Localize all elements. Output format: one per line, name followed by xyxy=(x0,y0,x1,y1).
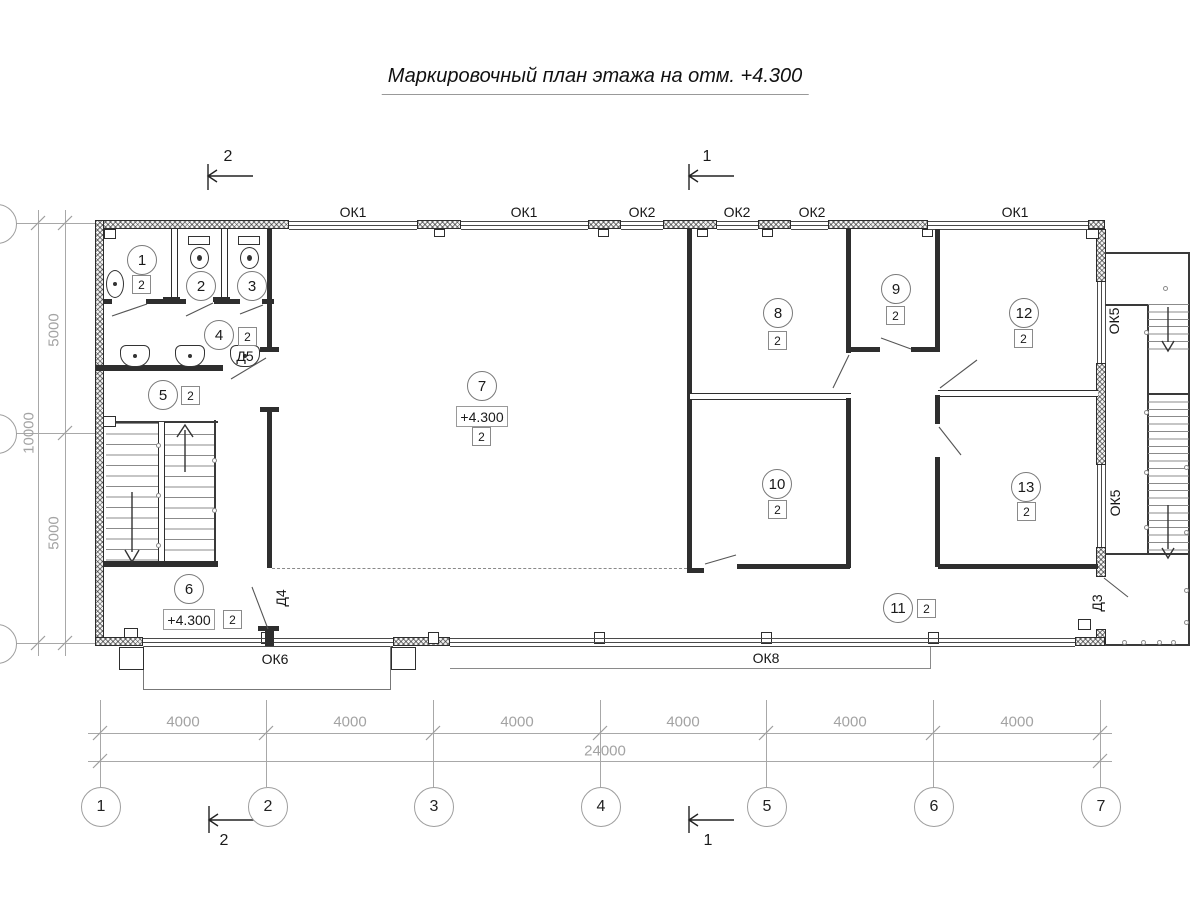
finish-badge: 2 xyxy=(768,331,787,350)
dimension-text: 4000 xyxy=(333,714,366,731)
window-label: ОК6 xyxy=(262,651,289,667)
window-label: ОК1 xyxy=(340,204,367,220)
stair-down-arrow xyxy=(1162,307,1174,351)
door-leaf xyxy=(833,355,849,388)
window-label: ОК1 xyxy=(511,204,538,220)
door-leaf xyxy=(186,303,213,316)
axis-bubble: 7 xyxy=(1081,787,1121,827)
dimension-tick xyxy=(926,726,940,740)
door-label: Д5 xyxy=(236,348,253,364)
dimension-text-total: 24000 xyxy=(584,743,626,760)
dimension-text: 10000 xyxy=(21,412,38,454)
dimension-tick xyxy=(426,726,440,740)
axis-bubble: 1 xyxy=(81,787,121,827)
finish-badge: 2 xyxy=(1017,502,1036,521)
door-leaf xyxy=(1104,578,1128,597)
window-label: ОК5 xyxy=(1106,308,1122,335)
dimension-text: 4000 xyxy=(500,714,533,731)
finish-badge: 2 xyxy=(886,306,905,325)
window-label: ОК8 xyxy=(753,650,780,666)
room-number: 6 xyxy=(174,574,204,604)
window-label: ОК2 xyxy=(799,204,826,220)
axis-bubble: 3 xyxy=(414,787,454,827)
elevation-mark: +4.300 xyxy=(456,406,508,427)
dimension-text: 4000 xyxy=(833,714,866,731)
dimension-tick xyxy=(93,726,107,740)
finish-badge: 2 xyxy=(132,275,151,294)
stair-down-arrow xyxy=(1162,505,1174,558)
dimension-tick xyxy=(58,216,72,230)
section-arrow xyxy=(208,164,253,190)
dimension-text: 4000 xyxy=(166,714,199,731)
door-leaf xyxy=(112,304,147,316)
dimension-tick xyxy=(1093,754,1107,768)
room-number: 1 xyxy=(127,245,157,275)
door-leaf xyxy=(240,305,263,314)
room-number: 4 xyxy=(204,320,234,350)
floor-plan-canvas: Маркировочный план этажа на отм. +4.300 xyxy=(0,0,1200,900)
dimension-tick xyxy=(58,426,72,440)
finish-badge: 2 xyxy=(223,610,242,629)
dimension-tick xyxy=(93,754,107,768)
linework-overlay xyxy=(0,0,1200,900)
room-number: 9 xyxy=(881,274,911,304)
axis-bubble: 5 xyxy=(747,787,787,827)
section-marks xyxy=(208,164,734,833)
door-leaf xyxy=(705,555,736,564)
dimension-tick xyxy=(31,216,45,230)
room-number: 5 xyxy=(148,380,178,410)
axis-bubble: 2 xyxy=(248,787,288,827)
door-leaf xyxy=(252,587,268,629)
stair-down-arrow xyxy=(125,492,139,562)
section-label: 2 xyxy=(220,832,229,850)
dimension-tick xyxy=(1093,726,1107,740)
dimension-text: 5000 xyxy=(46,313,63,346)
dimension-tick xyxy=(259,726,273,740)
window-label: ОК5 xyxy=(1107,490,1123,517)
axis-bubble: 4 xyxy=(581,787,621,827)
dimension-tick xyxy=(593,726,607,740)
section-label: 2 xyxy=(224,148,233,166)
door-label: Д4 xyxy=(273,589,289,606)
door-leaf xyxy=(881,338,911,349)
elevation-mark: +4.300 xyxy=(163,609,215,630)
finish-badge: 2 xyxy=(917,599,936,618)
room-number: 8 xyxy=(763,298,793,328)
room-number: 13 xyxy=(1011,472,1041,502)
axis-bubble: 6 xyxy=(914,787,954,827)
window-label: ОК2 xyxy=(629,204,656,220)
room-number: 12 xyxy=(1009,298,1039,328)
section-label: 1 xyxy=(703,148,712,166)
window-label: ОК2 xyxy=(724,204,751,220)
room-number: 11 xyxy=(883,593,913,623)
room-number: 7 xyxy=(467,371,497,401)
finish-badge: 2 xyxy=(181,386,200,405)
dimension-text: 4000 xyxy=(666,714,699,731)
dimension-text: 5000 xyxy=(46,516,63,549)
dimension-tick xyxy=(31,636,45,650)
door-leaves xyxy=(112,303,1128,629)
room-number: 10 xyxy=(762,469,792,499)
finish-badge: 2 xyxy=(472,427,491,446)
window-label: ОК1 xyxy=(1002,204,1029,220)
room-number: 3 xyxy=(237,271,267,301)
door-label: Д3 xyxy=(1089,594,1105,611)
stair-up-arrow xyxy=(177,425,193,472)
door-leaf xyxy=(940,360,977,388)
section-arrow xyxy=(689,164,734,190)
door-leaf xyxy=(939,427,961,455)
room-number: 2 xyxy=(186,271,216,301)
finish-badge: 2 xyxy=(1014,329,1033,348)
section-arrow xyxy=(689,806,734,833)
section-label: 1 xyxy=(704,832,713,850)
finish-badge: 2 xyxy=(238,327,257,346)
dimension-tick xyxy=(759,726,773,740)
dimension-text: 4000 xyxy=(1000,714,1033,731)
finish-badge: 2 xyxy=(768,500,787,519)
dimension-tick xyxy=(58,636,72,650)
